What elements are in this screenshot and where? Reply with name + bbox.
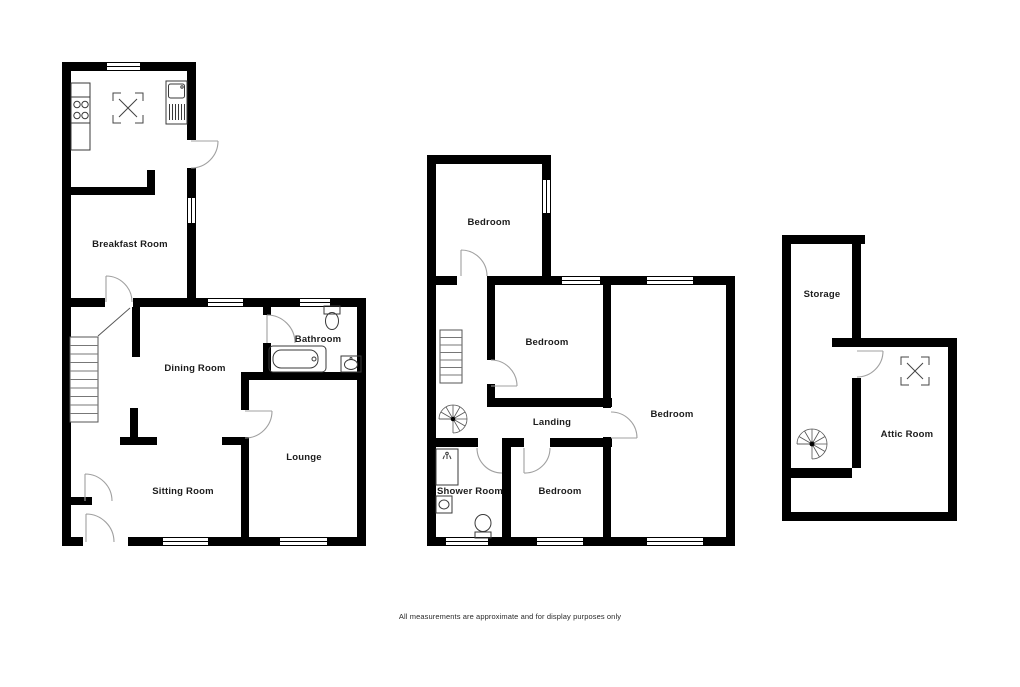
basin-icon <box>436 496 452 513</box>
attic-room-door-arc <box>857 351 883 377</box>
back-door-arc <box>191 141 218 168</box>
attic-floor-walls <box>782 235 957 521</box>
floorplan-drawing: Breakfast Room Dining Room Bathroom Loun… <box>0 0 1020 687</box>
window-icon <box>107 63 140 71</box>
bedroom-door-arc <box>524 448 550 473</box>
window-icon <box>208 299 243 307</box>
ground-floor-doors <box>85 141 295 542</box>
bedroom-door-arc <box>611 412 637 438</box>
toilet-icon <box>475 515 491 539</box>
room-label-storage: Storage <box>804 289 841 300</box>
spiral-staircase-icon <box>797 429 827 459</box>
ground-floor-walls <box>62 62 366 546</box>
window-icon <box>647 538 703 546</box>
window-icon <box>163 538 208 546</box>
room-label-lounge: Lounge <box>286 452 322 463</box>
hob-icon <box>71 97 90 123</box>
room-label-dining-room: Dining Room <box>164 363 225 374</box>
ground-floor-plan: Breakfast Room Dining Room Bathroom Loun… <box>62 62 366 546</box>
rooflight-icon <box>901 357 929 385</box>
room-label-bedroom-1: Bedroom <box>467 217 510 228</box>
sink-icon <box>166 81 187 124</box>
attic-floor-doors <box>857 351 883 377</box>
window-icon <box>188 198 196 223</box>
first-floor-fixtures <box>436 330 491 538</box>
room-label-bedroom-4: Bedroom <box>538 486 581 497</box>
window-icon <box>543 180 551 213</box>
breakfast-room-door-arc <box>106 276 132 302</box>
window-icon <box>446 538 488 546</box>
first-floor-plan: Bedroom Bedroom Bedroom Landing Bedroom … <box>427 155 735 546</box>
bath-icon <box>269 346 326 372</box>
toilet-icon <box>324 306 340 330</box>
room-label-shower-room: Shower Room <box>437 486 503 497</box>
spiral-staircase-icon <box>439 405 467 433</box>
window-icon <box>300 299 330 307</box>
room-label-bedroom-2: Bedroom <box>525 337 568 348</box>
staircase-icon <box>440 330 462 383</box>
room-label-attic-room: Attic Room <box>881 429 934 440</box>
window-icon <box>647 277 693 285</box>
room-label-breakfast-room: Breakfast Room <box>92 239 168 250</box>
floorplan-page: Breakfast Room Dining Room Bathroom Loun… <box>0 0 1020 687</box>
lounge-door-arc <box>245 411 272 438</box>
room-label-landing: Landing <box>533 417 571 428</box>
room-label-sitting-room: Sitting Room <box>152 486 214 497</box>
window-icon <box>562 277 600 285</box>
room-label-bedroom-3: Bedroom <box>650 409 693 420</box>
shower-room-door-arc <box>477 448 502 473</box>
rooflight-icon <box>113 93 143 123</box>
first-floor-labels: Bedroom Bedroom Bedroom Landing Bedroom … <box>437 217 694 497</box>
attic-floor-fixtures <box>797 357 929 459</box>
attic-floor-plan: Storage Attic Room <box>782 235 957 521</box>
bedroom-door-arc <box>461 250 487 276</box>
staircase-icon <box>70 308 130 422</box>
bathroom-door-arc <box>267 315 295 343</box>
shower-icon <box>436 449 458 485</box>
hall-door-arc <box>85 474 112 501</box>
window-icon <box>537 538 583 546</box>
room-label-bathroom: Bathroom <box>295 334 341 345</box>
window-icon <box>280 538 327 546</box>
front-door-arc <box>86 514 114 542</box>
disclaimer-text: All measurements are approximate and for… <box>399 612 621 621</box>
attic-floor-labels: Storage Attic Room <box>804 289 934 440</box>
bedroom-door-arc <box>491 360 517 386</box>
